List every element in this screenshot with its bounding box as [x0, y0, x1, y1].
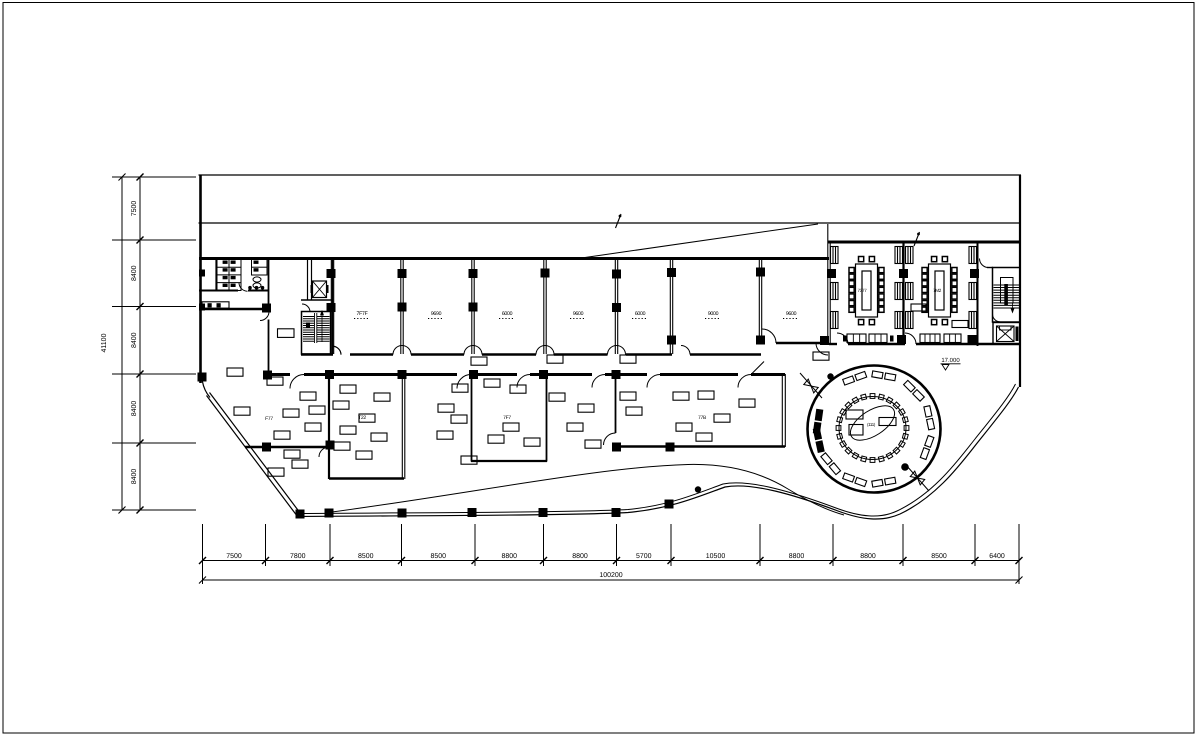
svg-text:41100: 41100 — [101, 333, 108, 352]
svg-text:8500: 8500 — [430, 553, 446, 560]
svg-text:6000: 6000 — [635, 311, 646, 317]
svg-text:8800: 8800 — [501, 553, 517, 560]
svg-text:9600: 9600 — [786, 311, 797, 317]
svg-text:8400: 8400 — [131, 469, 138, 485]
svg-text:8800: 8800 — [789, 553, 805, 560]
svg-text:9600: 9600 — [573, 311, 584, 317]
svg-text:8800: 8800 — [860, 553, 876, 560]
svg-text:17.000: 17.000 — [941, 357, 960, 364]
svg-text:8800: 8800 — [572, 553, 588, 560]
svg-text:6400: 6400 — [989, 553, 1005, 560]
svg-text:100200: 100200 — [599, 572, 622, 579]
svg-text:8400: 8400 — [131, 265, 138, 281]
svg-text:8500: 8500 — [358, 553, 374, 560]
svg-text:10500: 10500 — [706, 553, 726, 560]
svg-text:5700: 5700 — [636, 553, 652, 560]
svg-text:(111): (111) — [867, 422, 876, 427]
svg-text:F77: F77 — [265, 416, 273, 422]
svg-text:7500: 7500 — [131, 201, 138, 217]
svg-text:7377: 7377 — [857, 288, 867, 293]
svg-text:9000: 9000 — [708, 311, 719, 317]
svg-text:7M2: 7M2 — [933, 288, 942, 293]
svg-text:7F7: 7F7 — [503, 415, 511, 421]
svg-text:7F7F: 7F7F — [357, 311, 368, 317]
svg-text:9690: 9690 — [431, 311, 442, 317]
svg-text:8400: 8400 — [131, 401, 138, 417]
svg-text:8500: 8500 — [931, 553, 947, 560]
svg-text:6000: 6000 — [502, 311, 513, 317]
svg-text:8400: 8400 — [131, 332, 138, 348]
svg-text:77B: 77B — [698, 415, 707, 421]
svg-text:7500: 7500 — [226, 553, 242, 560]
svg-text:7800: 7800 — [290, 553, 306, 560]
